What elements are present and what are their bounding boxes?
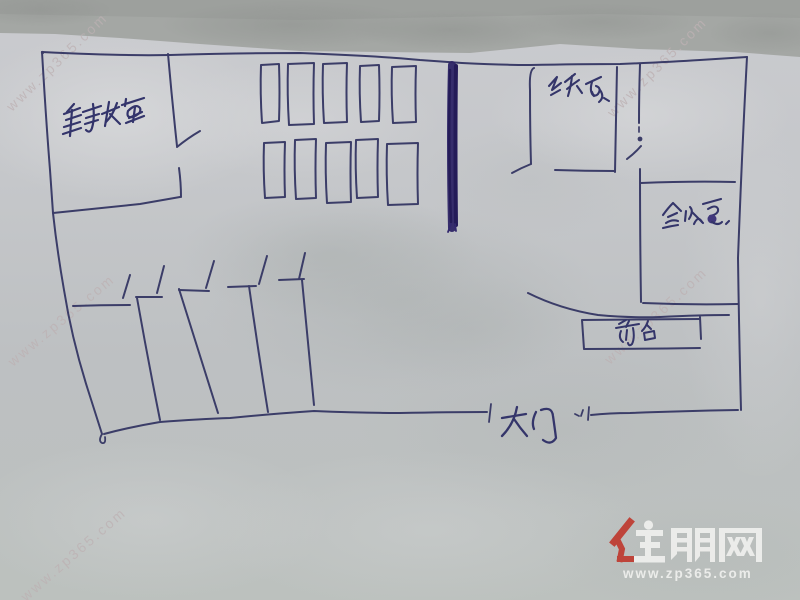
svg-text:www.zp365.com: www.zp365.com [622,566,753,581]
